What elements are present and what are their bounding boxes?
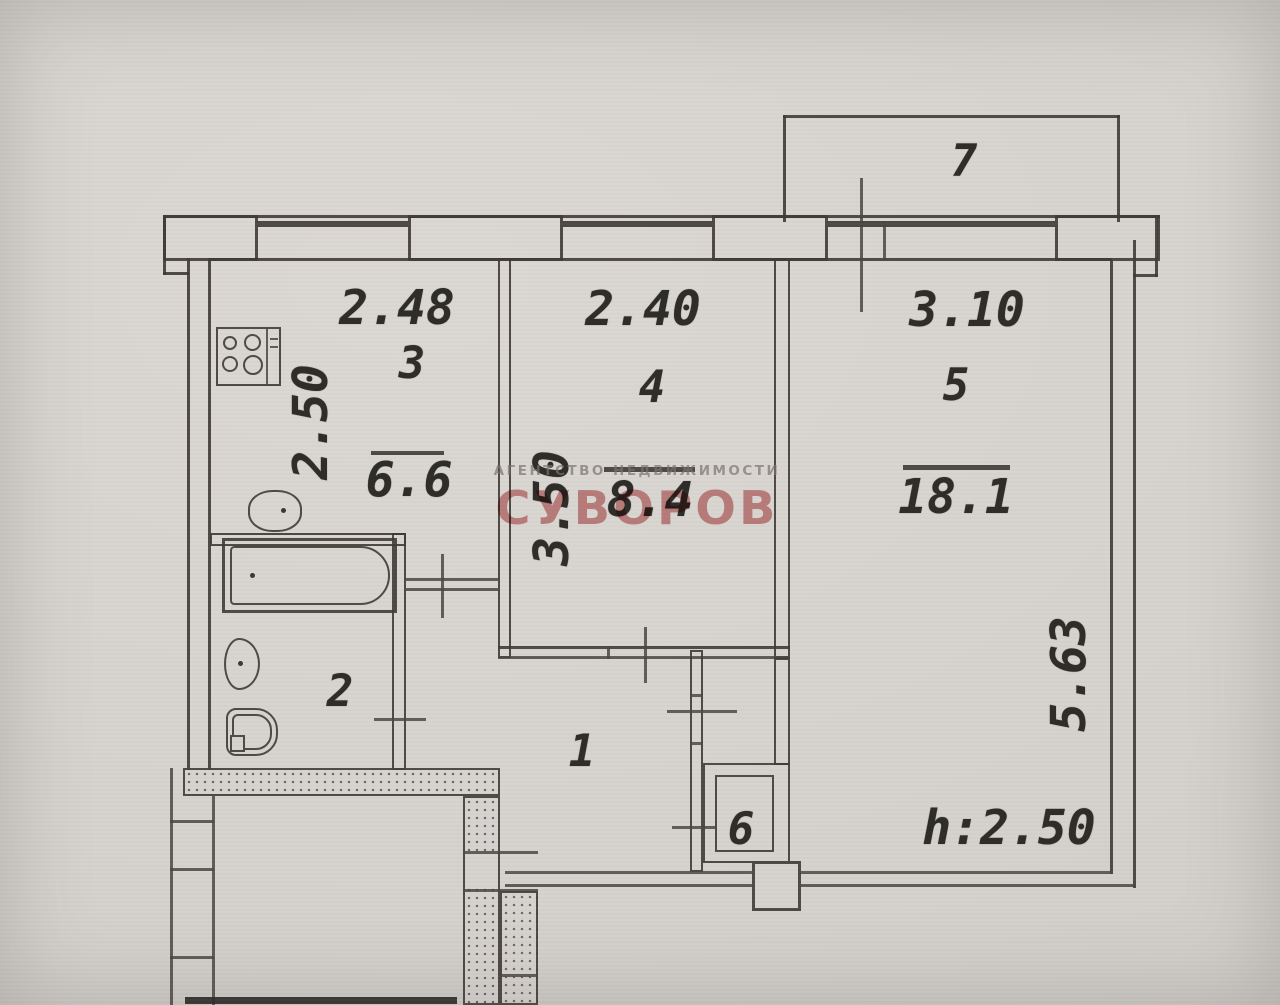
room4-number: 4 [639, 366, 666, 410]
room5-number: 5 [943, 364, 970, 408]
kitchen-depth-label: 2.50 [287, 364, 335, 480]
kitchen-width-label: 2.48 [339, 284, 455, 332]
room5-area-label: 18.1 [898, 473, 1014, 521]
watermark-agency-name: СУВОРОВ [495, 481, 778, 535]
room5-width-label: 3.10 [909, 286, 1025, 334]
hall-number: 1 [569, 730, 596, 774]
bathroom-number: 2 [327, 670, 354, 714]
kitchen-area-label: 6.6 [366, 456, 453, 504]
kitchen-number: 3 [399, 342, 426, 386]
floor-plan: 7 2.48 3 2.50 6.6 2.40 4 3.50 8.4 3.10 5… [0, 0, 1280, 1005]
closet-number: 6 [728, 808, 755, 852]
balcony-number: 7 [951, 140, 978, 184]
ceiling-height-label: h:2.50 [922, 804, 1095, 852]
room4-width-label: 2.40 [585, 285, 701, 333]
room5-depth-label: 5.63 [1045, 616, 1093, 732]
watermark-agency-line: АГЕНТСТВО НЕДВИЖИМОСТИ [494, 463, 781, 479]
